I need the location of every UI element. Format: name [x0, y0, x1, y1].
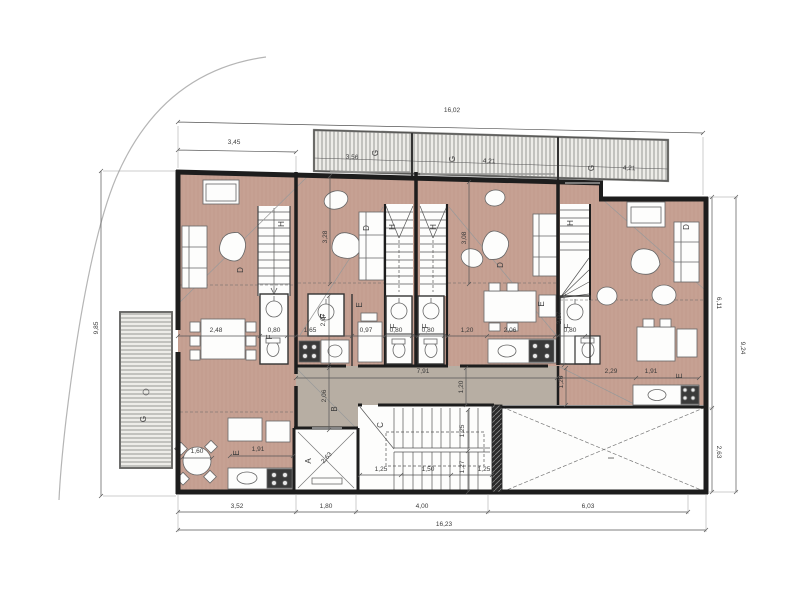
stove	[529, 340, 554, 362]
room-label: F	[319, 313, 328, 318]
dimension-label: 1,27	[459, 460, 466, 473]
dimension-label: 0,80	[268, 327, 281, 334]
room-label: F	[563, 323, 572, 328]
room-label: H	[277, 221, 286, 227]
sideboard	[266, 421, 290, 442]
dimension-label: 6,03	[582, 503, 595, 510]
dimension-label: 2,06	[321, 389, 328, 402]
dimension-label: 1,65	[304, 327, 317, 334]
sofa	[359, 212, 384, 280]
dimension-label: 9,24	[739, 342, 746, 355]
dimension-label: 9,85	[93, 321, 100, 334]
dining-table	[201, 319, 245, 359]
sink	[328, 345, 342, 357]
room-label: D	[362, 225, 371, 231]
room-label: E	[232, 450, 241, 455]
dimension-label: 3,52	[231, 503, 244, 510]
room-label: I	[607, 457, 616, 459]
room-label: F	[265, 334, 274, 339]
room-label: D	[236, 267, 245, 273]
room-label: E	[537, 301, 546, 306]
dimension-label: 16,23	[436, 521, 453, 528]
stair-core	[358, 405, 492, 492]
shower	[423, 303, 439, 319]
stove	[267, 469, 292, 488]
shower	[391, 303, 407, 319]
dim-chain	[710, 195, 714, 494]
dimension-label: 16,02	[444, 107, 461, 114]
room-label: G	[139, 416, 148, 422]
room-label: E	[355, 302, 364, 307]
sofa	[533, 214, 557, 276]
dimension-label: 3,56	[346, 154, 359, 161]
room-label: G	[448, 156, 457, 162]
room-label: H	[429, 224, 438, 230]
sink	[648, 390, 666, 401]
dimension-label: 2,48	[210, 327, 223, 334]
sideboard	[228, 418, 262, 441]
dimension-label: 1,60	[191, 448, 204, 455]
pouf	[597, 287, 617, 305]
dimension-label: 1,25	[375, 466, 388, 473]
dimension-label: 1,91	[645, 368, 658, 375]
room-label: A	[304, 458, 313, 464]
sofa	[674, 222, 699, 282]
dimension-label: 6,11	[715, 297, 722, 310]
room-label: D	[496, 262, 505, 268]
dimension-label: 1,91	[252, 446, 265, 453]
dim-chain	[176, 510, 690, 514]
floor-plan-drawing: 16,023,453,564,214,219,856,119,242,633,5…	[0, 0, 800, 600]
stair-unit2	[386, 204, 413, 296]
dimension-label: 2,07	[556, 311, 563, 324]
shower	[266, 301, 282, 317]
dim-chain	[734, 195, 738, 494]
pouf	[652, 285, 676, 305]
dimension-label: 3,28	[322, 230, 329, 243]
dimension-label: 3,45	[228, 139, 241, 146]
dimension-label: 2,63	[715, 446, 722, 459]
dimension-label: 4,21	[623, 165, 636, 172]
sofa	[182, 226, 207, 288]
shower	[567, 304, 583, 320]
stair-unit3	[420, 204, 447, 296]
side-table	[677, 329, 697, 357]
dining-table	[637, 327, 675, 361]
sink	[237, 472, 257, 484]
dimension-label: 1,25	[459, 424, 466, 437]
sink	[498, 345, 516, 357]
stove	[299, 341, 320, 362]
room-label: F	[389, 323, 398, 328]
dimension-label: 2,06	[504, 327, 517, 334]
room-label: G	[371, 150, 380, 156]
dimension-label: 1,80	[320, 503, 333, 510]
room-label: B	[330, 406, 339, 411]
dimension-label: 4,21	[483, 158, 496, 165]
dimension-label: 1,20	[458, 380, 465, 393]
dimension-label: 1,25	[478, 466, 491, 473]
toilet	[267, 342, 279, 357]
dimension-label: 2,29	[605, 368, 618, 375]
dimension-label: 1,20	[558, 375, 565, 388]
dimension-label: 1,50	[422, 466, 435, 473]
room-label: E	[675, 373, 684, 378]
room-label: D	[682, 224, 691, 230]
room-label: G	[587, 165, 596, 171]
dim-chain	[176, 148, 298, 154]
dim-chain	[176, 528, 708, 532]
dimension-label: 4,00	[416, 503, 429, 510]
toilet	[582, 343, 594, 358]
dimension-label: 3,08	[461, 231, 468, 244]
dimension-label: 7,91	[417, 368, 430, 375]
stair-unit4	[560, 204, 589, 300]
room-label: C	[376, 422, 385, 428]
room-label: H	[566, 220, 575, 226]
toilet	[425, 343, 437, 358]
floor-plan: 16,023,453,564,214,219,856,119,242,633,5…	[0, 0, 800, 600]
dining-table	[484, 291, 536, 322]
room-label: F	[421, 323, 430, 328]
room-label: H	[388, 224, 397, 230]
dimension-label: 0,97	[360, 327, 373, 334]
dimension-label: 1,20	[461, 327, 474, 334]
west-balcony	[120, 312, 172, 468]
hatched-wall	[492, 405, 502, 492]
toilet	[393, 343, 405, 358]
